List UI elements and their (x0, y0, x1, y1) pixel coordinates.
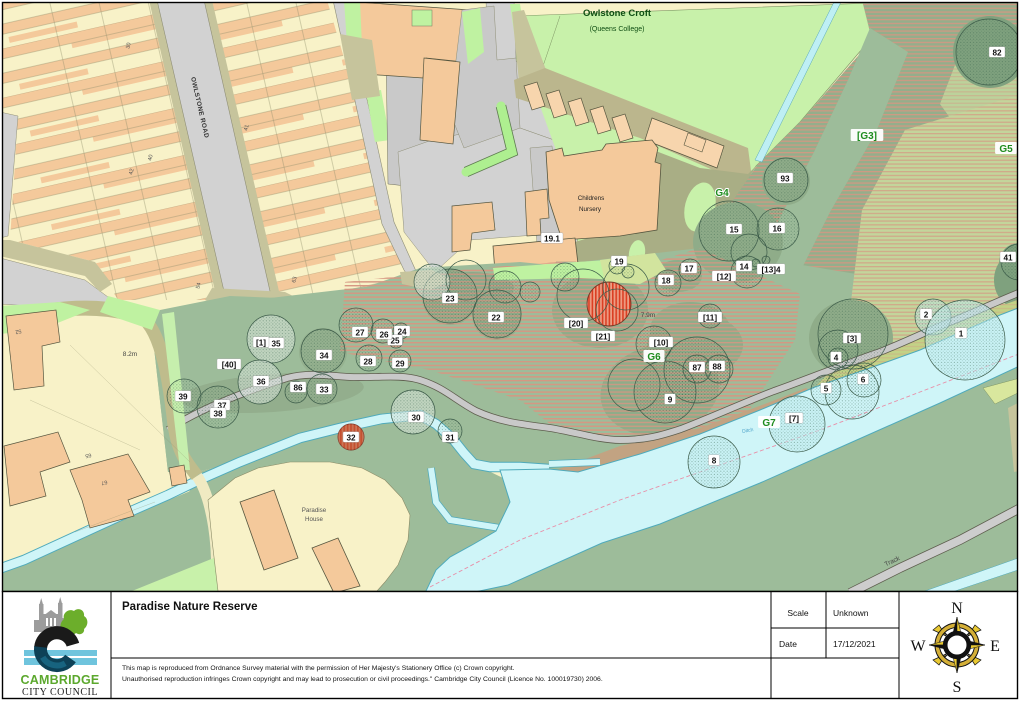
svg-text:17: 17 (684, 264, 694, 273)
svg-text:14: 14 (739, 262, 749, 271)
svg-text:33: 33 (319, 385, 329, 394)
svg-text:Unknown: Unknown (833, 608, 869, 618)
svg-text:26: 26 (379, 330, 389, 339)
svg-text:[1]: [1] (256, 338, 266, 347)
svg-text:7.9m: 7.9m (641, 312, 655, 319)
svg-text:[7]: [7] (789, 414, 799, 423)
svg-text:22: 22 (491, 313, 501, 322)
svg-text:G5: G5 (999, 144, 1013, 155)
svg-text:35: 35 (271, 339, 281, 348)
svg-text:Owlstone Croft: Owlstone Croft (583, 8, 652, 19)
svg-text:[40]: [40] (222, 360, 237, 369)
svg-text:30: 30 (411, 413, 421, 422)
svg-text:1: 1 (959, 329, 964, 338)
svg-text:41: 41 (1003, 253, 1013, 262)
svg-text:[21]: [21] (596, 332, 611, 341)
svg-text:16: 16 (772, 224, 782, 233)
svg-text:Paradise Nature Reserve: Paradise Nature Reserve (122, 601, 258, 613)
svg-text:4: 4 (834, 353, 839, 362)
svg-text:38: 38 (213, 409, 223, 418)
svg-text:19: 19 (614, 257, 624, 266)
svg-text:G4: G4 (715, 188, 729, 199)
svg-text:[12]: [12] (717, 272, 732, 281)
svg-text:[11]: [11] (703, 313, 717, 322)
svg-text:W: W (910, 638, 926, 655)
svg-text:17/12/2021: 17/12/2021 (833, 639, 876, 649)
svg-text:[10]: [10] (654, 338, 669, 347)
svg-text:8: 8 (712, 456, 717, 465)
svg-text:CAMBRIDGE: CAMBRIDGE (21, 673, 100, 687)
svg-text:32: 32 (346, 433, 356, 442)
svg-text:House: House (305, 516, 323, 523)
svg-text:[13]4: [13]4 (761, 265, 781, 274)
svg-text:28: 28 (363, 357, 373, 366)
svg-text:29: 29 (395, 359, 405, 368)
svg-text:9: 9 (668, 395, 673, 404)
svg-text:Date: Date (779, 639, 797, 649)
svg-text:65: 65 (85, 451, 92, 458)
svg-text:2: 2 (924, 310, 929, 319)
svg-text:15: 15 (729, 225, 739, 234)
svg-text:Paradise: Paradise (302, 507, 327, 514)
svg-text:8.2m: 8.2m (123, 351, 137, 358)
svg-text:[20]: [20] (569, 319, 584, 328)
svg-text:This map is reproduced from Or: This map is reproduced from Ordnance Sur… (122, 665, 515, 672)
svg-text:CITY COUNCIL: CITY COUNCIL (22, 687, 98, 698)
svg-text:6: 6 (861, 375, 866, 384)
svg-text:5: 5 (824, 384, 829, 393)
svg-text:86: 86 (293, 383, 303, 392)
svg-text:67: 67 (101, 478, 108, 485)
svg-text:[3]: [3] (847, 334, 857, 343)
svg-text:27: 27 (355, 328, 365, 337)
svg-text:93: 93 (780, 174, 790, 183)
svg-text:Scale: Scale (787, 608, 809, 618)
svg-text:G6: G6 (647, 352, 661, 363)
svg-text:N: N (951, 600, 963, 617)
svg-text:G7: G7 (762, 418, 776, 429)
svg-text:39: 39 (178, 392, 188, 401)
svg-text:Nursery: Nursery (579, 206, 602, 213)
svg-text:36: 36 (256, 377, 266, 386)
svg-text:52: 52 (15, 327, 22, 334)
svg-text:87: 87 (692, 363, 702, 372)
svg-text:Childrens: Childrens (578, 195, 605, 202)
svg-text:Unauthorised reproduction infr: Unauthorised reproduction infringes Crow… (122, 676, 603, 683)
svg-text:[G3]: [G3] (857, 131, 877, 142)
svg-text:82: 82 (992, 48, 1002, 57)
svg-text:S: S (953, 679, 962, 696)
svg-text:34: 34 (319, 351, 329, 360)
svg-text:88: 88 (712, 362, 722, 371)
svg-text:(Queens College): (Queens College) (590, 26, 645, 33)
svg-text:19.1: 19.1 (544, 234, 560, 243)
svg-text:E: E (990, 638, 1000, 655)
svg-text:23: 23 (445, 294, 455, 303)
svg-text:31: 31 (445, 433, 455, 442)
svg-text:18: 18 (661, 276, 671, 285)
